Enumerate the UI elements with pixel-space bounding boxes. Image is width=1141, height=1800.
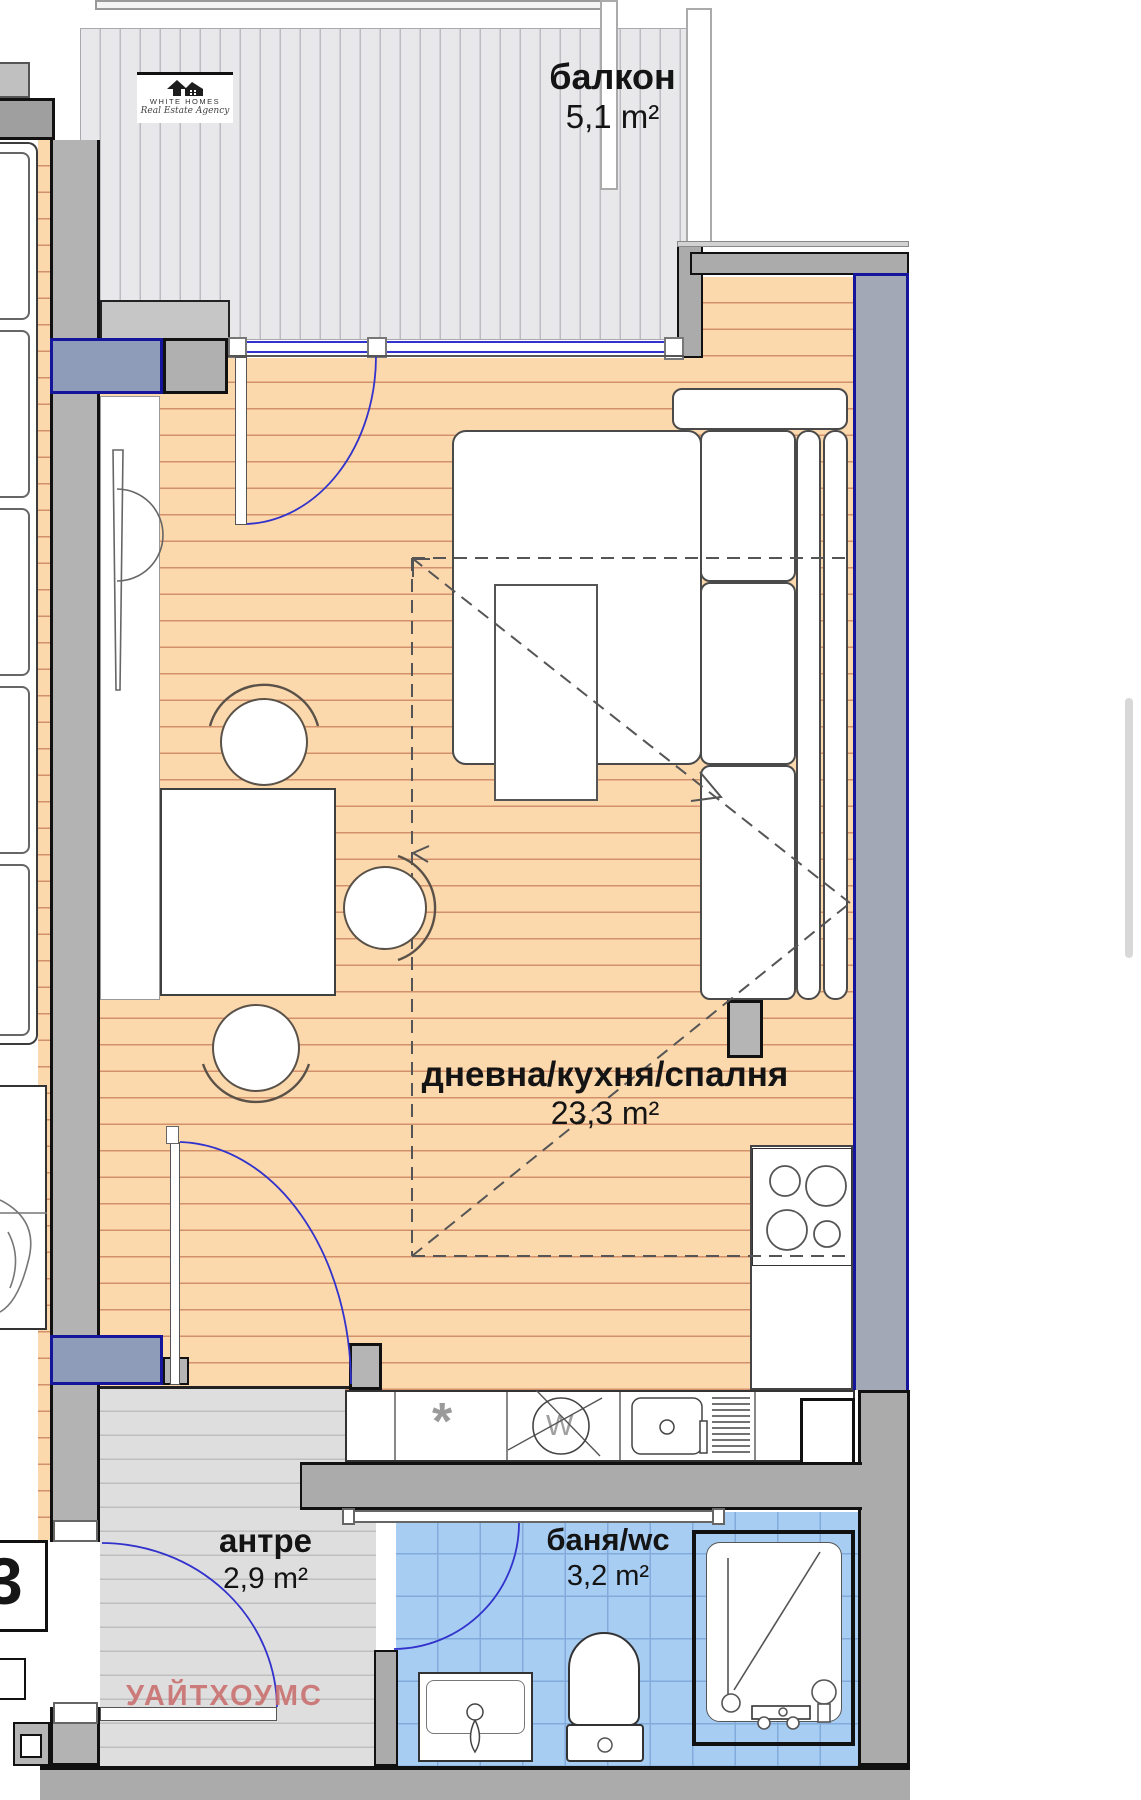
door-frame-post <box>53 1520 98 1542</box>
agency-watermark: УАЙТХОУМС <box>126 1680 323 1713</box>
wall-bottom <box>40 1766 910 1800</box>
structural-column <box>50 1335 163 1385</box>
neighbor-sofa-cushion <box>0 152 30 320</box>
sofa-seat <box>700 582 796 765</box>
door-frame-post <box>53 1702 98 1724</box>
structural-column <box>50 338 163 394</box>
floor-plan: 3 * W <box>0 0 1141 1800</box>
wall-corner-top-left <box>0 62 30 98</box>
hallway-door-leaf <box>170 1142 180 1385</box>
neighbor-sofa-cushion <box>0 864 30 1036</box>
bath-partition-end <box>712 1508 725 1525</box>
bathroom-sink-basin <box>426 1680 525 1734</box>
window-glazing <box>387 341 664 353</box>
wall-block <box>163 338 228 394</box>
window-glazing <box>247 341 367 353</box>
agency-logo: WHITE HOMES Real Estate Agency <box>137 72 233 123</box>
sofa-seat <box>700 765 796 1000</box>
wall-stub-bath <box>374 1650 398 1766</box>
dishwasher-symbol: * <box>432 1392 452 1452</box>
hallway-name: антре <box>168 1522 363 1561</box>
wall-kitchen-bath <box>300 1462 862 1510</box>
washing-machine-symbol: W <box>546 1410 573 1443</box>
wall-corner-top-left <box>0 98 55 140</box>
sofa-seat <box>700 430 796 582</box>
kitchen-counter-bottom <box>345 1390 855 1462</box>
hallway-area: 2,9 m² <box>168 1561 363 1596</box>
hallway-top-line <box>100 1386 349 1389</box>
neighbor-sofa-cushion <box>0 330 30 498</box>
neighbor-unit-number: 3 <box>0 1543 23 1619</box>
stove <box>752 1148 852 1266</box>
tv-cabinet <box>100 396 160 1000</box>
wall-stub-kitchen <box>727 1000 763 1058</box>
logo-name: WHITE HOMES <box>137 97 233 106</box>
wall-door-jamb-block <box>349 1343 382 1390</box>
scrollbar-thumb[interactable] <box>1125 698 1133 958</box>
dining-table <box>160 788 336 996</box>
bathroom-area: 3,2 m² <box>508 1559 708 1593</box>
neighbor-sofa-cushion <box>0 686 30 854</box>
bathroom-name: баня/wc <box>508 1522 708 1559</box>
balcony-door-leaf <box>235 357 247 525</box>
window-sill-line <box>228 355 684 357</box>
door-frame-post <box>166 1126 179 1144</box>
sofa-pillow <box>672 388 848 430</box>
neighbor-floor-strip <box>38 140 50 1540</box>
neighbor-desk <box>0 1085 47 1330</box>
toilet-tank <box>566 1724 644 1762</box>
hallway-label: антре 2,9 m² <box>168 1522 363 1596</box>
sofa-backrest <box>796 430 821 1000</box>
living-room-label: дневна/кухня/спалня 23,3 m² <box>380 1054 830 1133</box>
shower-pan <box>706 1542 842 1722</box>
wall-top-right <box>690 252 909 275</box>
neighbor-unit-number-box: 3 <box>0 1540 48 1632</box>
neighbor-wall-inset <box>20 1734 42 1758</box>
living-room-area: 23,3 m² <box>380 1095 830 1133</box>
logo-house-icon <box>165 77 205 97</box>
wall-outer-line <box>677 241 909 247</box>
balcony-name: балкон <box>515 56 710 98</box>
coffee-table <box>494 584 598 801</box>
sofa-backrest <box>823 430 848 1000</box>
living-room-name: дневна/кухня/спалня <box>380 1054 830 1095</box>
wall-below-balcony <box>100 300 230 340</box>
wall-right-lower <box>858 1390 910 1766</box>
toilet-bowl <box>568 1632 640 1726</box>
balcony-railing <box>95 0 608 10</box>
logo-tagline: Real Estate Agency <box>137 106 233 117</box>
bathroom-label: баня/wc 3,2 m² <box>508 1522 708 1593</box>
balcony-label: балкон 5,1 m² <box>515 56 710 137</box>
wall-right-exterior <box>853 273 909 1390</box>
balcony-area: 5,1 m² <box>515 98 710 137</box>
neighbor-sofa-cushion <box>0 508 30 676</box>
neighbor-fixture <box>0 1658 26 1700</box>
